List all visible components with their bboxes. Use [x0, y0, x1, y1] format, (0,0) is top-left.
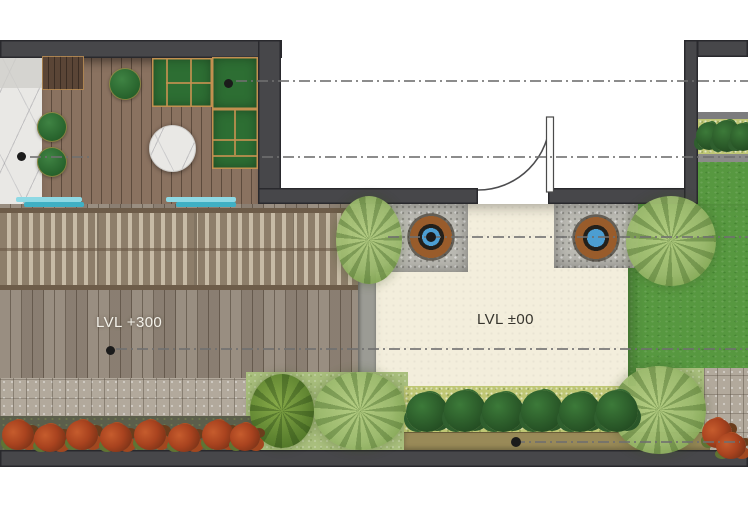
door-swing-drawing — [0, 0, 748, 512]
marker-dot-sofa — [224, 79, 233, 88]
marker-dot-marble — [17, 152, 26, 161]
landscape-plan-canvas: LVL +300 LVL ±00 — [0, 0, 748, 512]
centerline-hedge — [514, 441, 740, 443]
centerline-upper — [236, 80, 748, 82]
terrace-level-label: LVL ±00 — [477, 311, 534, 328]
marker-dot-deck — [106, 346, 115, 355]
door-arc — [478, 118, 550, 190]
centerline-mid-upper — [262, 156, 748, 158]
centerline-levels — [116, 348, 748, 350]
centerline-pots — [388, 236, 748, 238]
marker-dot-hedge — [511, 437, 521, 447]
door-leaf — [547, 117, 554, 192]
deck-level-label: LVL +300 — [96, 314, 162, 331]
marker-dot-pot-left — [426, 232, 436, 242]
centerline-marble — [30, 156, 90, 158]
